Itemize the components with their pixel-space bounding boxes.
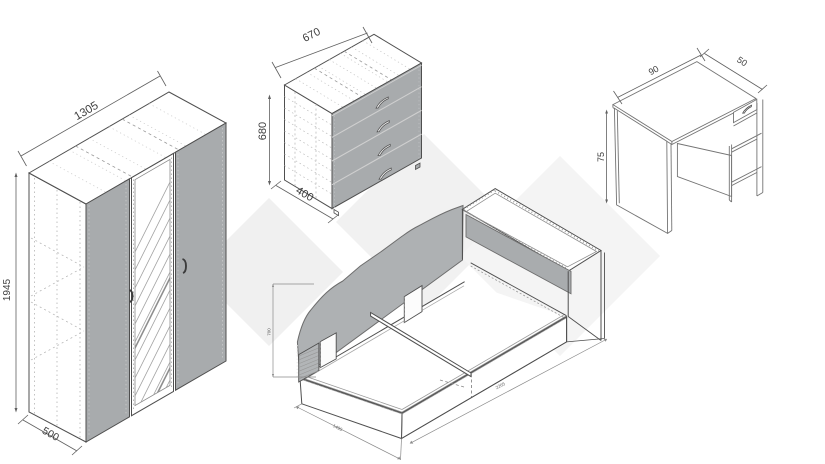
svg-text:680: 680: [257, 122, 269, 140]
svg-text:1945: 1945: [2, 278, 13, 301]
svg-text:700: 700: [267, 328, 272, 336]
svg-text:75: 75: [596, 152, 606, 162]
